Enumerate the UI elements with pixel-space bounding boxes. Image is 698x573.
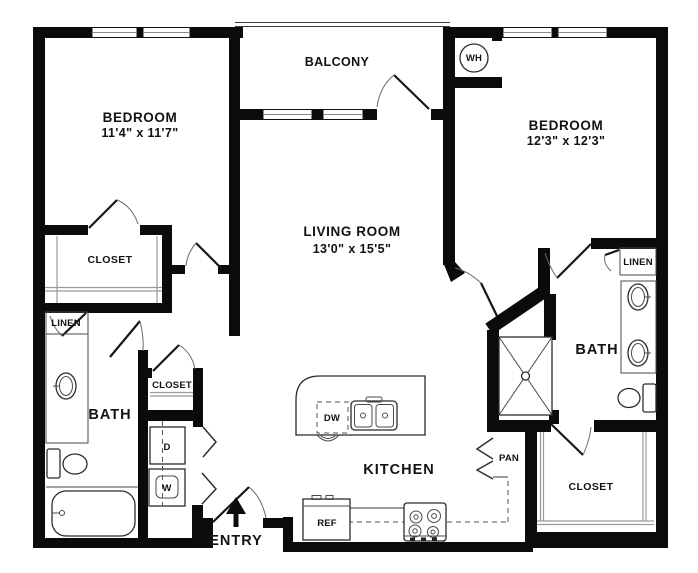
refrigerator-label: REF: [317, 518, 337, 529]
floorplan: BALCONY WH BEDROOM 11'4" x 11'7" BEDROOM…: [0, 0, 698, 573]
stove: [404, 503, 446, 541]
entry-arrow: [226, 497, 246, 527]
living-room-label: LIVING ROOM: [303, 224, 400, 239]
wall: [45, 225, 88, 235]
wall: [492, 27, 502, 41]
wall: [538, 248, 550, 298]
vanity-right: [621, 281, 656, 373]
bath-right-label: BATH: [575, 342, 618, 358]
bath-left-label: BATH: [88, 407, 131, 423]
wall: [446, 27, 668, 38]
window: [323, 110, 363, 120]
washer-label: W: [162, 483, 171, 494]
dryer-label: D: [163, 442, 170, 453]
hall-closet-door: [153, 345, 195, 371]
wall: [525, 420, 537, 540]
laundry-bifold-doors: [202, 427, 216, 504]
wall: [140, 410, 203, 421]
kitchen-sink: [351, 397, 397, 430]
sink-left: [53, 373, 76, 399]
living-room-dimensions: 13'0" x 15'5": [313, 242, 392, 256]
window: [558, 28, 607, 38]
wall: [525, 532, 668, 548]
floorplan-drawing: BALCONY WH BEDROOM 11'4" x 11'7" BEDROOM…: [0, 0, 698, 573]
balcony-label: BALCONY: [305, 55, 370, 69]
wall: [229, 27, 240, 120]
door-opening: [377, 108, 431, 121]
linen-left-label: LINEN: [51, 318, 81, 329]
bedroom-right-dimensions: 12'3" x 12'3": [527, 134, 606, 148]
wall: [591, 238, 656, 249]
toilet-left: [47, 449, 87, 478]
closet-right-shelving: [537, 432, 654, 525]
closet-left-shelving: [45, 236, 162, 303]
closet-right-label: CLOSET: [569, 481, 614, 493]
closet-hall-shelving: [150, 393, 193, 397]
wall: [656, 27, 668, 548]
bath-right-door: [545, 244, 591, 278]
wall: [33, 538, 213, 548]
wall: [192, 505, 203, 548]
outer-walls: [33, 27, 668, 552]
wall-diagonal: [489, 293, 542, 329]
window: [143, 28, 190, 38]
wall: [140, 368, 152, 378]
wall: [443, 120, 455, 265]
wall: [452, 77, 502, 88]
windows: [92, 28, 607, 120]
wall: [443, 27, 455, 120]
hall-door: [186, 243, 222, 269]
window: [263, 110, 312, 120]
wall: [229, 120, 240, 267]
wall: [138, 350, 148, 548]
water-heater-label: WH: [466, 53, 482, 64]
shower: [499, 337, 552, 415]
wall: [162, 265, 185, 274]
wall: [487, 330, 499, 427]
linen-right-label: LINEN: [623, 257, 653, 268]
window: [503, 28, 552, 38]
balcony-railing: [235, 23, 450, 27]
pantry-bifold-doors: [477, 438, 493, 479]
bedroom-left-dimensions: 11'4" x 11'7": [101, 126, 178, 140]
balcony-door: [377, 75, 429, 109]
bathtub: [46, 487, 138, 536]
wall: [544, 294, 556, 340]
wall: [283, 542, 533, 552]
wall: [229, 274, 240, 336]
bedroom-left-label: BEDROOM: [103, 110, 178, 125]
window: [92, 28, 137, 38]
bedroom-right-label: BEDROOM: [529, 118, 604, 133]
linen-right-door: [605, 250, 619, 271]
wall: [33, 27, 45, 548]
pantry-label: PAN: [499, 453, 519, 464]
wall: [487, 420, 551, 432]
dishwasher-label: DW: [324, 413, 340, 424]
kitchen-label: KITCHEN: [363, 462, 434, 478]
wall-bevel: [443, 262, 465, 282]
closet-right-door: [551, 424, 591, 455]
entry-label: ENTRY: [209, 533, 263, 549]
wall: [33, 27, 243, 38]
toilet-right: [618, 384, 656, 412]
bedroom-left-door: [89, 200, 138, 228]
closet-left-label: CLOSET: [88, 254, 133, 266]
wall: [594, 420, 656, 432]
closet-hall-label: CLOSET: [152, 380, 192, 391]
